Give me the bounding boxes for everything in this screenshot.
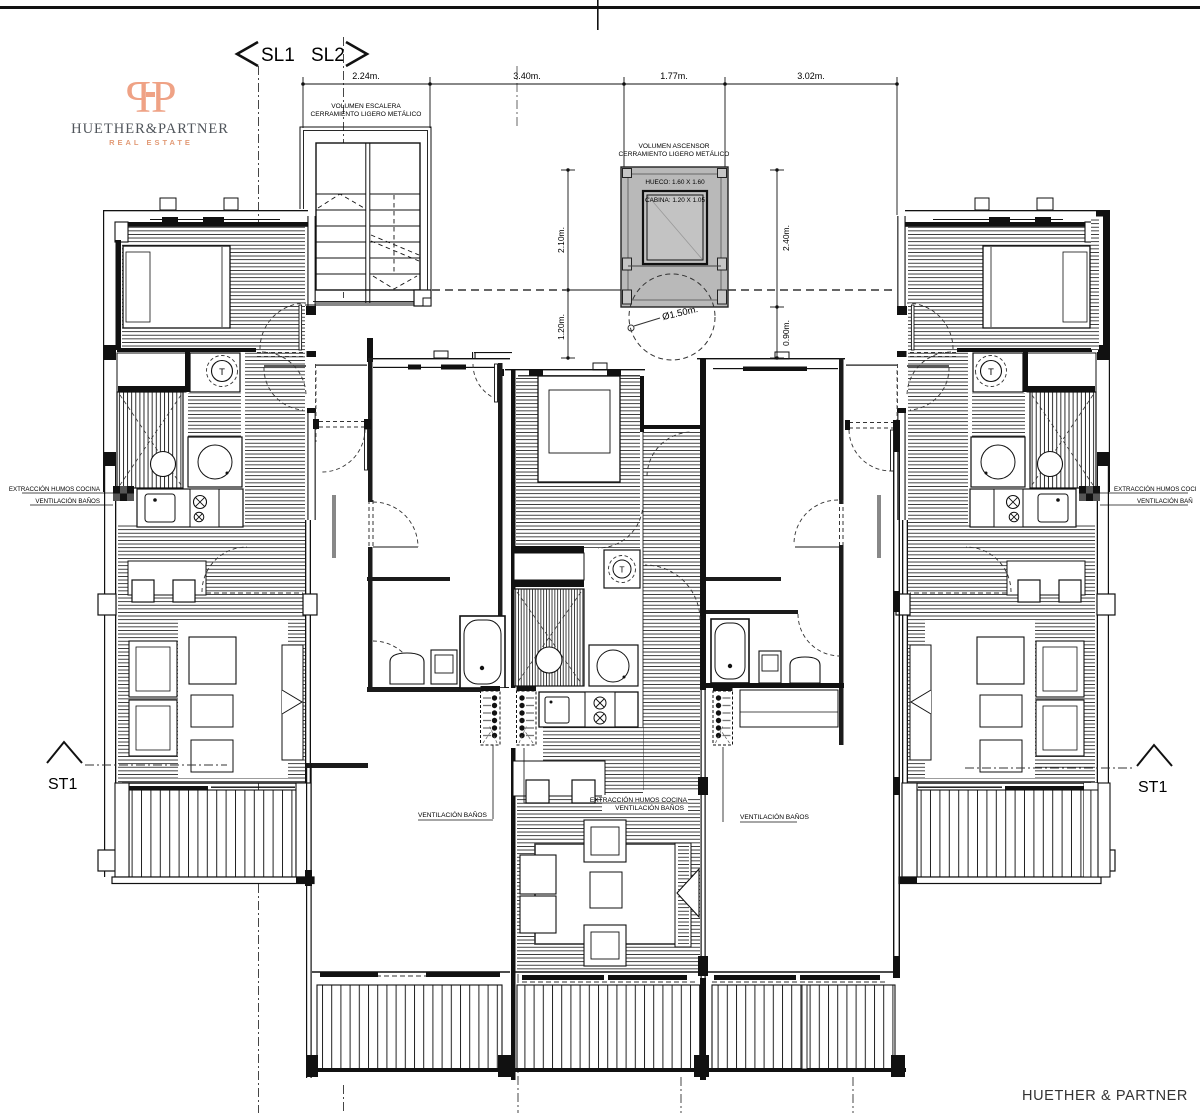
svg-text:VOLUMEN ESCALERA: VOLUMEN ESCALERA [331, 103, 401, 110]
svg-text:HUECO: 1.60 X 1.60: HUECO: 1.60 X 1.60 [645, 179, 705, 186]
svg-text:T: T [619, 565, 624, 575]
svg-text:HUETHER&PARTNER: HUETHER&PARTNER [71, 121, 229, 137]
svg-text:SL2: SL2 [311, 45, 345, 66]
svg-text:T: T [219, 367, 225, 378]
svg-text:ST1: ST1 [1138, 779, 1167, 796]
svg-text:3.40m.: 3.40m. [513, 71, 541, 81]
svg-text:VENTILACIÓN BAÑOS: VENTILACIÓN BAÑOS [615, 803, 684, 812]
svg-text:CERRAMIENTO LIGERO METÁLICO: CERRAMIENTO LIGERO METÁLICO [619, 149, 730, 158]
svg-text:ST1: ST1 [48, 776, 77, 793]
svg-text:VENTILACIÓN BAÑOS: VENTILACIÓN BAÑOS [35, 498, 100, 505]
svg-text:2.10m.: 2.10m. [556, 227, 566, 253]
svg-text:1.77m.: 1.77m. [660, 71, 688, 81]
svg-text:VENTILACIÓN BAÑ: VENTILACIÓN BAÑ [1137, 498, 1193, 505]
svg-text:2.40m.: 2.40m. [781, 225, 791, 251]
svg-text:VENTILACIÓN BAÑOS: VENTILACIÓN BAÑOS [418, 810, 487, 819]
svg-text:HUETHER & PARTNER: HUETHER & PARTNER [1022, 1088, 1188, 1104]
svg-text:CABINA: 1.20 X 1.05: CABINA: 1.20 X 1.05 [645, 197, 705, 204]
svg-text:SL1: SL1 [261, 45, 295, 66]
svg-text:3.02m.: 3.02m. [797, 71, 825, 81]
svg-text:CERRAMIENTO LIGERO METÁLICO: CERRAMIENTO LIGERO METÁLICO [311, 109, 422, 118]
svg-text:0.90m.: 0.90m. [781, 320, 791, 346]
svg-text:EXTRACCIÓN HUMOS COCI: EXTRACCIÓN HUMOS COCI [1114, 486, 1197, 493]
svg-text:EXTRACCIÓN HUMOS COCINA: EXTRACCIÓN HUMOS COCINA [9, 486, 101, 493]
svg-text:1.20m.: 1.20m. [556, 314, 566, 340]
svg-text:REAL ESTATE: REAL ESTATE [109, 138, 193, 147]
svg-text:VOLUMEN ASCENSOR: VOLUMEN ASCENSOR [638, 143, 709, 150]
svg-text:VENTILACIÓN BAÑOS: VENTILACIÓN BAÑOS [740, 812, 809, 821]
svg-text:2.24m.: 2.24m. [352, 71, 380, 81]
